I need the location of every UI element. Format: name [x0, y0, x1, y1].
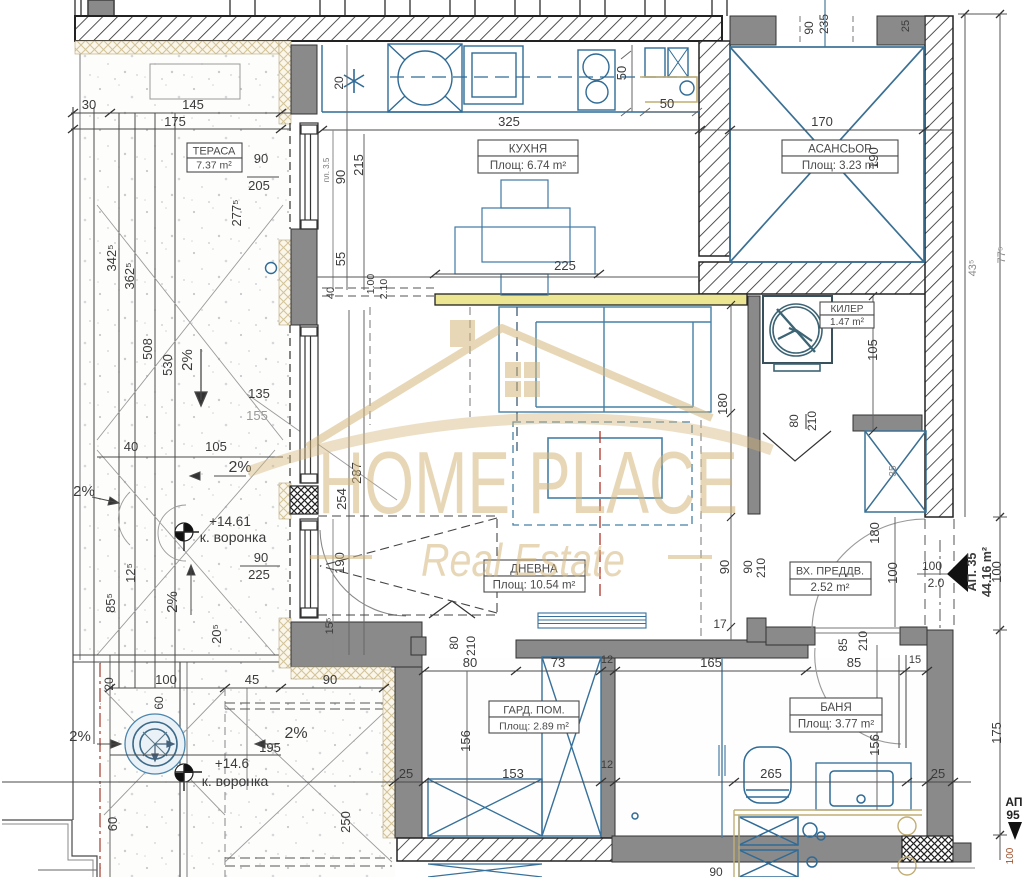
- svg-text:362⁵: 362⁵: [122, 262, 137, 289]
- svg-text:80: 80: [447, 636, 461, 650]
- svg-text:85: 85: [847, 655, 861, 670]
- svg-text:45: 45: [245, 672, 259, 687]
- svg-text:50: 50: [614, 66, 629, 80]
- svg-text:20: 20: [102, 677, 116, 691]
- svg-text:100: 100: [922, 559, 942, 573]
- svg-text:ТЕРАСА: ТЕРАСА: [193, 146, 236, 158]
- svg-text:Площ: 6.74 m²: Площ: 6.74 m²: [490, 160, 567, 172]
- svg-text:90: 90: [741, 560, 755, 574]
- svg-text:180: 180: [867, 522, 882, 544]
- svg-text:+14.6: +14.6: [215, 756, 249, 771]
- svg-text:HOME PLACE: HOME PLACE: [318, 433, 738, 532]
- svg-text:508: 508: [140, 338, 155, 360]
- svg-text:2%: 2%: [284, 725, 307, 742]
- svg-text:АП: АП: [1005, 795, 1022, 809]
- svg-text:100: 100: [155, 672, 177, 687]
- svg-text:25: 25: [399, 766, 413, 781]
- svg-text:2.52 m²: 2.52 m²: [811, 582, 850, 594]
- svg-text:90: 90: [254, 151, 268, 166]
- svg-text:210: 210: [754, 558, 768, 578]
- svg-text:90: 90: [333, 170, 348, 184]
- svg-text:40: 40: [325, 287, 337, 299]
- svg-text:30: 30: [82, 97, 96, 112]
- svg-text:к. воронка: к. воронка: [200, 529, 267, 545]
- svg-text:210: 210: [856, 631, 870, 651]
- svg-text:2.10: 2.10: [378, 279, 390, 300]
- svg-text:44.16 m²: 44.16 m²: [980, 547, 994, 597]
- svg-text:2%: 2%: [164, 591, 181, 613]
- svg-text:156: 156: [458, 730, 473, 752]
- svg-text:205: 205: [248, 178, 270, 193]
- svg-text:225: 225: [248, 567, 270, 582]
- svg-text:90: 90: [323, 672, 337, 687]
- svg-text:40: 40: [124, 439, 138, 454]
- svg-text:2%: 2%: [73, 483, 95, 500]
- svg-text:90: 90: [717, 560, 732, 574]
- svg-text:43⁵: 43⁵: [967, 260, 979, 277]
- svg-text:55: 55: [333, 252, 348, 266]
- svg-text:25: 25: [900, 20, 912, 32]
- svg-text:250: 250: [338, 811, 353, 833]
- svg-text:85⁵: 85⁵: [103, 593, 118, 613]
- svg-text:155: 155: [246, 408, 268, 423]
- svg-text:1.47 m²: 1.47 m²: [830, 317, 865, 328]
- svg-text:90: 90: [254, 550, 268, 565]
- svg-text:17: 17: [713, 617, 727, 631]
- svg-text:АП. 35: АП. 35: [965, 553, 979, 592]
- svg-text:190: 190: [866, 147, 881, 169]
- svg-text:15: 15: [909, 654, 921, 666]
- svg-text:КИЛЕР: КИЛЕР: [831, 304, 864, 315]
- svg-text:60: 60: [152, 696, 166, 710]
- svg-text:35: 35: [888, 465, 899, 477]
- svg-text:235: 235: [817, 14, 831, 34]
- svg-text:ВХ. ПРЕДДВ.: ВХ. ПРЕДДВ.: [796, 566, 864, 578]
- svg-text:530: 530: [160, 354, 175, 376]
- svg-text:1.00: 1.00: [365, 274, 377, 295]
- svg-text:+14.61: +14.61: [209, 514, 251, 529]
- svg-text:165: 165: [700, 655, 722, 670]
- svg-text:12: 12: [601, 759, 613, 771]
- svg-text:265: 265: [760, 766, 782, 781]
- svg-text:20⁵: 20⁵: [209, 624, 224, 644]
- svg-text:100: 100: [885, 562, 900, 584]
- svg-text:225: 225: [554, 258, 576, 273]
- svg-text:12: 12: [601, 654, 613, 666]
- svg-text:135: 135: [248, 386, 270, 401]
- svg-text:195: 195: [259, 740, 281, 755]
- svg-text:20: 20: [332, 76, 346, 90]
- svg-text:15⁵: 15⁵: [324, 618, 336, 635]
- svg-text:80: 80: [787, 414, 801, 428]
- svg-text:60: 60: [105, 817, 120, 831]
- svg-text:100: 100: [1005, 847, 1016, 864]
- svg-text:175: 175: [989, 722, 1004, 744]
- svg-text:325: 325: [498, 114, 520, 129]
- svg-text:2%: 2%: [179, 349, 196, 371]
- svg-text:90: 90: [802, 21, 816, 35]
- svg-text:90: 90: [709, 865, 723, 877]
- svg-text:2%: 2%: [69, 728, 91, 745]
- svg-text:342⁵: 342⁵: [104, 244, 119, 271]
- svg-text:80: 80: [463, 655, 477, 670]
- svg-text:25: 25: [931, 766, 945, 781]
- svg-text:12⁵: 12⁵: [123, 563, 138, 583]
- svg-text:73: 73: [551, 655, 565, 670]
- svg-text:277⁵: 277⁵: [229, 199, 244, 226]
- svg-text:7.37 m²: 7.37 m²: [196, 160, 232, 172]
- svg-text:АСАНСЬОР: АСАНСЬОР: [808, 144, 872, 156]
- svg-text:95: 95: [1006, 808, 1020, 822]
- svg-text:50: 50: [660, 96, 674, 111]
- svg-text:к. воронка: к. воронка: [202, 773, 269, 789]
- svg-text:210: 210: [464, 636, 478, 656]
- svg-text:Площ: 2.89 m²: Площ: 2.89 m²: [499, 721, 569, 733]
- svg-text:210: 210: [805, 411, 819, 431]
- svg-text:170: 170: [811, 114, 833, 129]
- svg-text:180: 180: [715, 393, 730, 415]
- svg-text:БАНЯ: БАНЯ: [820, 702, 852, 714]
- svg-text:153: 153: [502, 766, 524, 781]
- svg-text:Real Estate: Real Estate: [421, 534, 625, 586]
- svg-text:2.0: 2.0: [928, 576, 945, 590]
- svg-text:156: 156: [867, 734, 882, 756]
- svg-text:105: 105: [865, 339, 880, 361]
- svg-text:105: 105: [205, 439, 227, 454]
- svg-text:77⁵: 77⁵: [996, 247, 1008, 264]
- svg-text:ГАРД. ПОМ.: ГАРД. ПОМ.: [503, 705, 564, 717]
- svg-text:пл. 3.5: пл. 3.5: [322, 157, 331, 182]
- svg-text:КУХНЯ: КУХНЯ: [509, 144, 547, 156]
- svg-text:85: 85: [836, 638, 850, 652]
- svg-text:145: 145: [182, 97, 204, 112]
- svg-text:175: 175: [164, 114, 186, 129]
- svg-text:Площ: 3.77 m²: Площ: 3.77 m²: [798, 719, 875, 731]
- svg-text:215: 215: [351, 154, 366, 176]
